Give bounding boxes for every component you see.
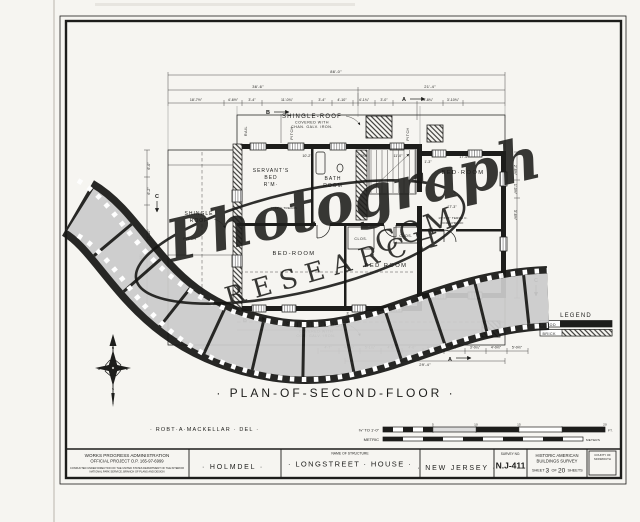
dim-label: 4'-0½": [491, 346, 502, 350]
legend-brick-label: BRICK: [543, 332, 557, 336]
corner-box-line2: MONMOUTH: [594, 457, 611, 461]
habs-line1: HISTORIC AMERICAN: [536, 453, 579, 458]
wpa-fineprint: NATIONAL PARK SERVICE, BRANCH OF PLANS A…: [90, 470, 165, 474]
dim-label: 86'-0": [330, 69, 342, 74]
sheet-number: 3: [546, 468, 550, 475]
dim-label: 4'-1¾": [359, 98, 370, 102]
compass-n-label: N: [112, 346, 114, 350]
dim-label: 3'-4": [248, 98, 256, 102]
dim-label: 6'-2": [147, 187, 151, 195]
dim-label: 11'-0¾": [281, 98, 294, 102]
plan-title: · PLAN-OF-SECOND-FLOOR ·: [216, 386, 455, 400]
survey-no-value: N.J-411: [496, 461, 526, 471]
chimney-hatch: [366, 116, 392, 138]
survey-no-header: SURVEY NO.: [501, 452, 521, 456]
town-label: · HOLMDEL ·: [202, 464, 264, 471]
of-word: OF: [552, 469, 558, 473]
section-letter: A: [402, 97, 406, 103]
scale-tick: 15: [517, 423, 521, 427]
state-label: · NEW JERSEY ·: [417, 465, 496, 472]
dim-label: 5'-0½": [512, 346, 523, 350]
wpa-fineprint: CONDUCTED UNDER DIRECTION OF THE UNITED …: [70, 466, 184, 470]
compass-s-label: S: [112, 387, 114, 391]
sheet-word: SHEET: [532, 469, 545, 473]
compass-e-label: E: [126, 367, 128, 371]
dim-label: 6'-0": [147, 162, 151, 170]
scale-unit: FT.: [608, 429, 613, 433]
dim-label: 3'-4": [318, 98, 326, 102]
sheet-total: 20: [558, 468, 566, 475]
dim-label: 18'-7½": [190, 98, 203, 102]
delineator-credit: · ROBT·A·MACKELLAR · DEL ·: [150, 427, 259, 433]
wpa-line2: OFFICIAL PROJECT O.P. 165-97-6999: [90, 459, 164, 464]
dim-label: 3'-0¼": [470, 346, 481, 350]
metric-unit: METERS: [586, 438, 600, 442]
dim-label: 3'-6½": [513, 210, 517, 221]
note: PITCH: [406, 127, 410, 140]
room-label: SERVANT'S: [253, 168, 289, 174]
note: COVERED WITH: [295, 121, 329, 125]
dim-label: 4'-10": [337, 98, 347, 102]
section-letter: C: [155, 194, 159, 200]
room-label: BED-ROOM: [272, 251, 315, 257]
dim-label: 29'-4": [419, 362, 431, 367]
structure-name: · LONGSTREET · HOUSE ·: [288, 460, 412, 469]
dim-label: 3'-0": [380, 98, 388, 102]
dim-label: 7'-0¾": [357, 154, 368, 158]
chimney-hatch: [427, 125, 443, 142]
dim-label: 10'-2": [302, 154, 312, 158]
note: CHAN. GALV. IRON.: [291, 125, 333, 129]
scale-tick: 10: [474, 423, 478, 427]
legend-brick-swatch: [562, 330, 612, 337]
scale-tick: 5: [432, 423, 434, 427]
dim-label: 3'-10¾": [447, 98, 460, 102]
section-letter: B: [266, 110, 270, 116]
scan-streak: [95, 3, 355, 6]
note: SHINGLE-ROOF: [282, 114, 342, 120]
structure-header: NAME OF STRUCTURE: [331, 452, 369, 456]
scale-tick: 20: [603, 423, 607, 427]
dim-label: 21'-4": [424, 84, 436, 89]
legend-title: LEGEND: [560, 313, 592, 319]
note: PITCH: [290, 126, 294, 139]
note: RAIL: [244, 126, 248, 136]
room-label: BED: [264, 175, 277, 181]
section-letter: A: [448, 357, 452, 363]
scanned-drawing-sheet: 86'-0" 36'-6" 21'-4" 18'-7½" 4'-6½" 3'-4…: [0, 0, 640, 522]
metric-scale-label: METRIC: [364, 437, 379, 442]
dim-label: 4'-8¾": [423, 98, 434, 102]
dim-label: 36'-6": [252, 84, 264, 89]
habs-line2: BUILDINGS SURVEY: [537, 459, 578, 464]
wpa-line1: WORKS PROGRESS ADMINISTRATION: [85, 453, 170, 458]
dim-label: 4'-6½": [228, 98, 239, 102]
sheets-word: SHEETS: [568, 469, 584, 473]
imperial-scale-label: ⅜" TO 1'-0": [359, 428, 380, 433]
compass-w-label: W: [97, 367, 100, 371]
legend-wood-swatch: [560, 321, 612, 328]
habs-sheet-svg: 86'-0" 36'-6" 21'-4" 18'-7½" 4'-6½" 3'-4…: [0, 0, 640, 522]
